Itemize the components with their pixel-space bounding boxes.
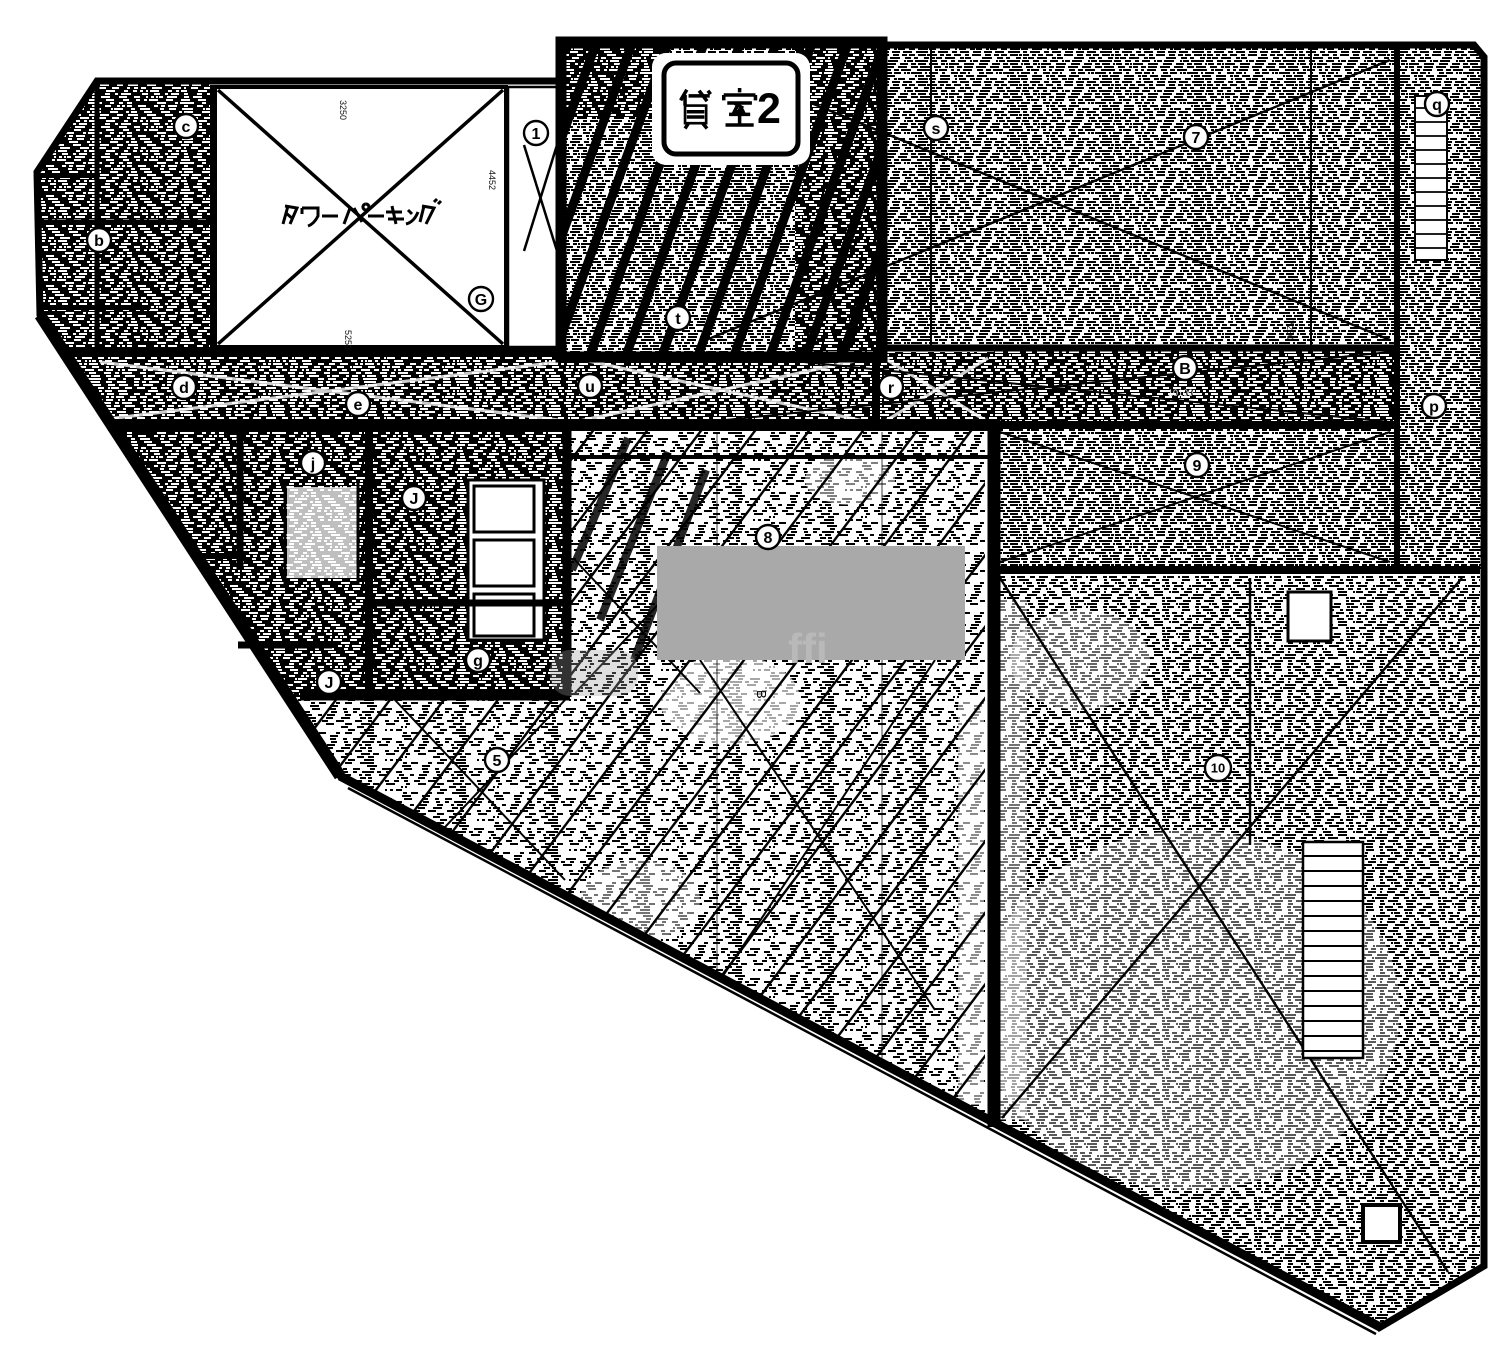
svg-text:10: 10	[1211, 761, 1225, 776]
svg-text:4452: 4452	[487, 170, 497, 190]
svg-text:1: 1	[532, 126, 541, 143]
svg-text:J: J	[410, 491, 419, 508]
svg-text:d: d	[179, 380, 189, 397]
svg-text:j: j	[310, 456, 315, 473]
svg-text:5250: 5250	[343, 330, 353, 350]
svg-text:ffi: ffi	[788, 625, 828, 672]
svg-text:5: 5	[493, 753, 502, 770]
svg-text:3250: 3250	[338, 100, 348, 120]
svg-text:e: e	[354, 397, 363, 414]
svg-text:2: 2	[757, 85, 781, 133]
svg-text:10100: 10100	[1168, 388, 1193, 398]
svg-text:8: 8	[764, 530, 773, 547]
svg-text:r: r	[888, 380, 894, 397]
svg-text:9: 9	[1193, 458, 1202, 475]
svg-text:s: s	[932, 121, 941, 138]
svg-text:c: c	[182, 119, 191, 136]
svg-text:7250: 7250	[1285, 320, 1295, 340]
svg-text:B: B	[1179, 361, 1191, 378]
svg-text:u: u	[585, 379, 595, 396]
svg-text:J: J	[325, 675, 334, 692]
svg-text:t: t	[675, 311, 681, 328]
svg-text:q: q	[1432, 97, 1442, 114]
svg-text:g: g	[473, 653, 483, 670]
svg-text:B: B	[754, 690, 769, 699]
svg-text:G: G	[475, 292, 487, 309]
svg-text:7: 7	[1192, 130, 1201, 147]
svg-text:p: p	[1429, 399, 1439, 416]
svg-text:b: b	[94, 233, 104, 250]
